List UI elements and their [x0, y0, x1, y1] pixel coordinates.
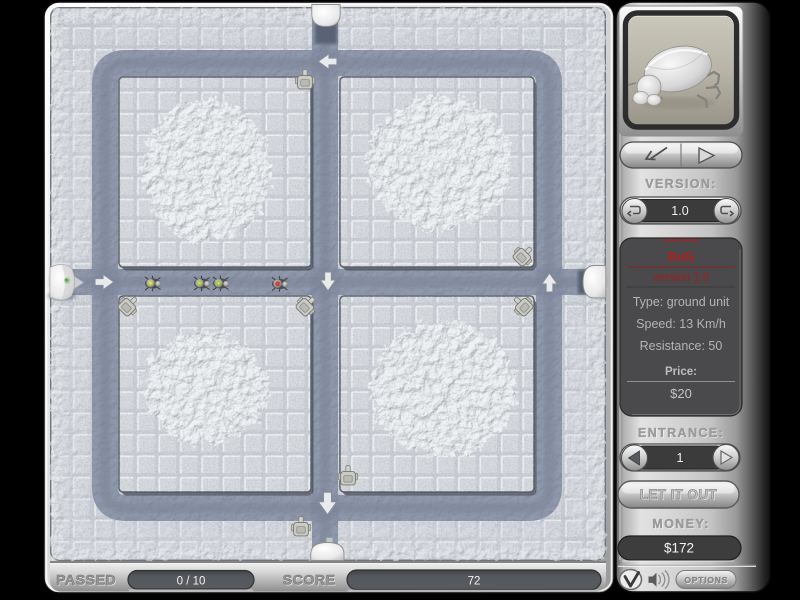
svg-text:LET IT OUT: LET IT OUT: [640, 487, 718, 502]
svg-text:72: 72: [468, 575, 481, 587]
svg-text:SCORE: SCORE: [283, 571, 336, 587]
svg-text:Type: ground unit: Type: ground unit: [633, 295, 730, 309]
svg-text:$20: $20: [670, 386, 692, 401]
svg-text:$172: $172: [664, 541, 694, 556]
svg-text:Price:: Price:: [665, 366, 697, 378]
svg-text:1: 1: [677, 451, 684, 465]
svg-text:BuG: BuG: [668, 250, 694, 264]
svg-text:Speed: 13 Km/h: Speed: 13 Km/h: [636, 317, 726, 331]
svg-text:Resistance: 50: Resistance: 50: [640, 339, 723, 353]
svg-text:version 1.0: version 1.0: [653, 272, 709, 284]
svg-text:OPTIONS: OPTIONS: [684, 575, 728, 585]
svg-text:1.0: 1.0: [671, 204, 688, 218]
svg-text:MONEY:: MONEY:: [652, 517, 709, 531]
svg-text:ENTRANCE:: ENTRANCE:: [638, 426, 724, 440]
svg-text:0 / 10: 0 / 10: [177, 575, 206, 587]
svg-text:PASSED: PASSED: [56, 571, 116, 587]
svg-text:VERSION:: VERSION:: [645, 177, 717, 191]
